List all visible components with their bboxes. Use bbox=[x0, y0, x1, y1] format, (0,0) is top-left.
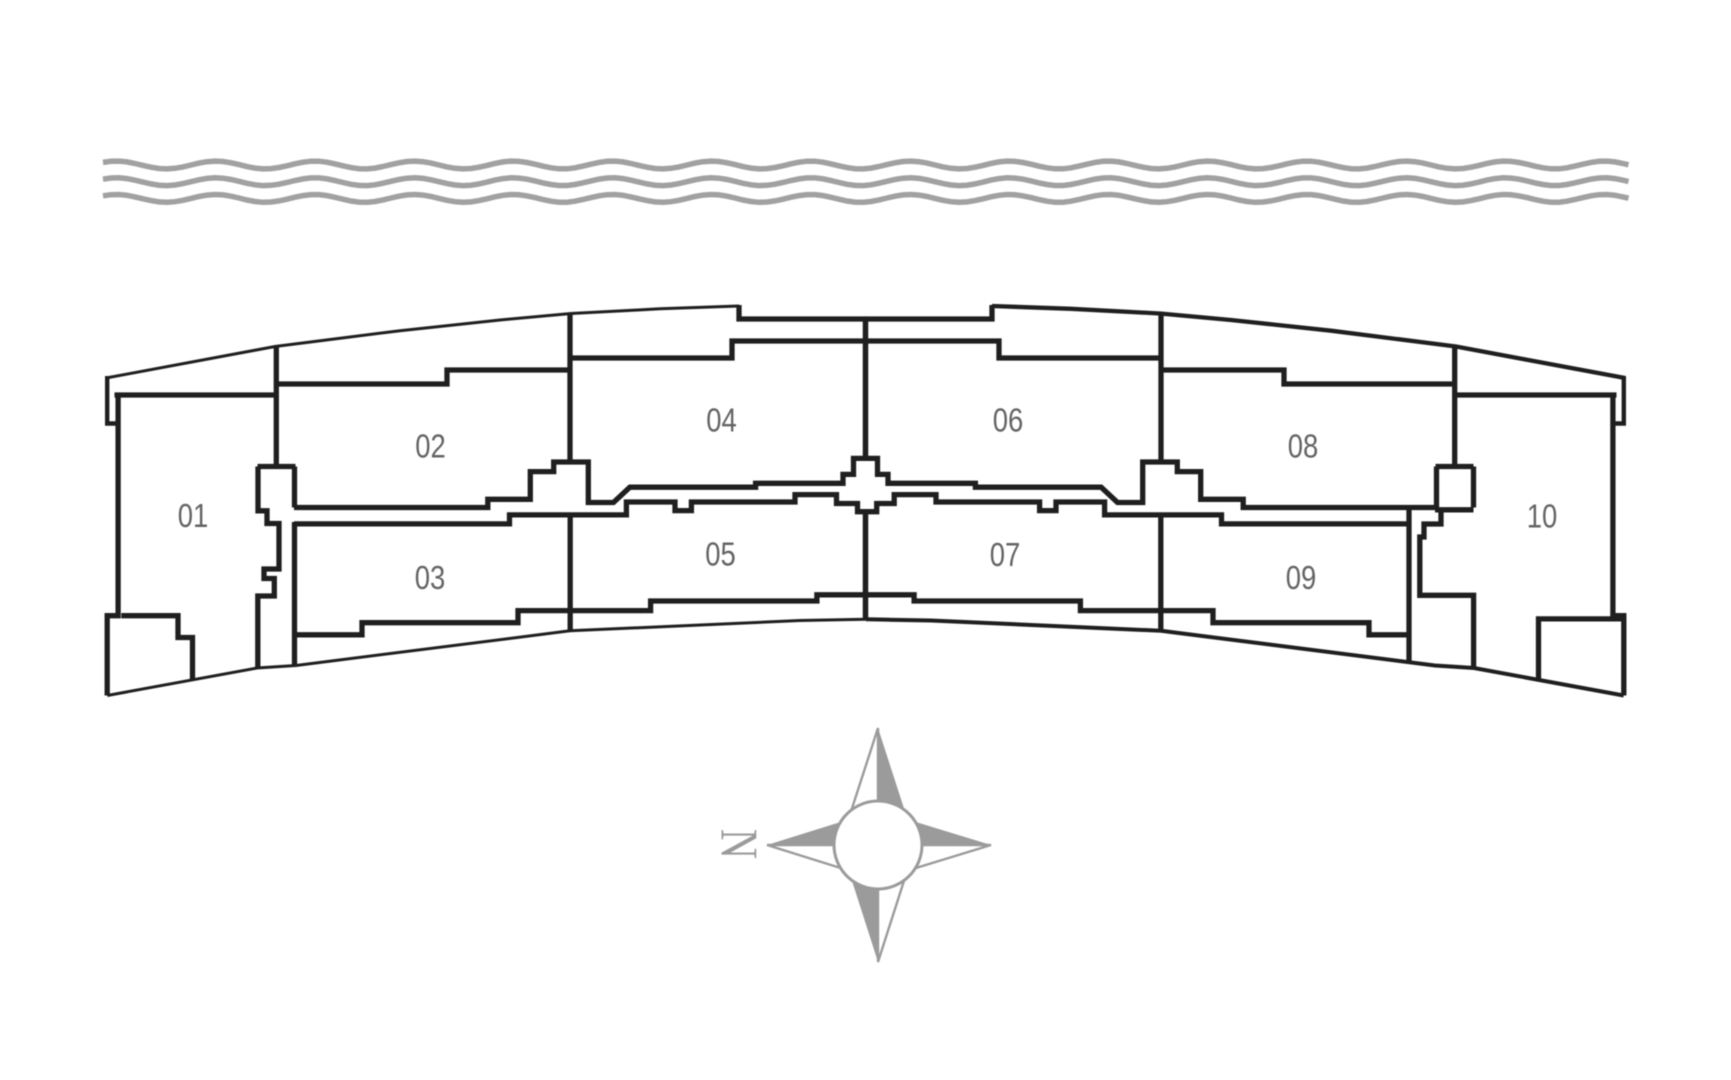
svg-text:06: 06 bbox=[993, 402, 1024, 439]
svg-text:01: 01 bbox=[178, 497, 209, 534]
svg-text:10: 10 bbox=[1527, 498, 1558, 535]
svg-text:03: 03 bbox=[415, 559, 446, 596]
svg-text:02: 02 bbox=[415, 428, 446, 465]
svg-text:09: 09 bbox=[1286, 559, 1317, 596]
svg-text:07: 07 bbox=[990, 536, 1021, 573]
svg-text:08: 08 bbox=[1288, 428, 1319, 465]
svg-text:04: 04 bbox=[706, 402, 737, 439]
svg-text:N: N bbox=[709, 829, 768, 859]
svg-text:05: 05 bbox=[705, 536, 736, 573]
